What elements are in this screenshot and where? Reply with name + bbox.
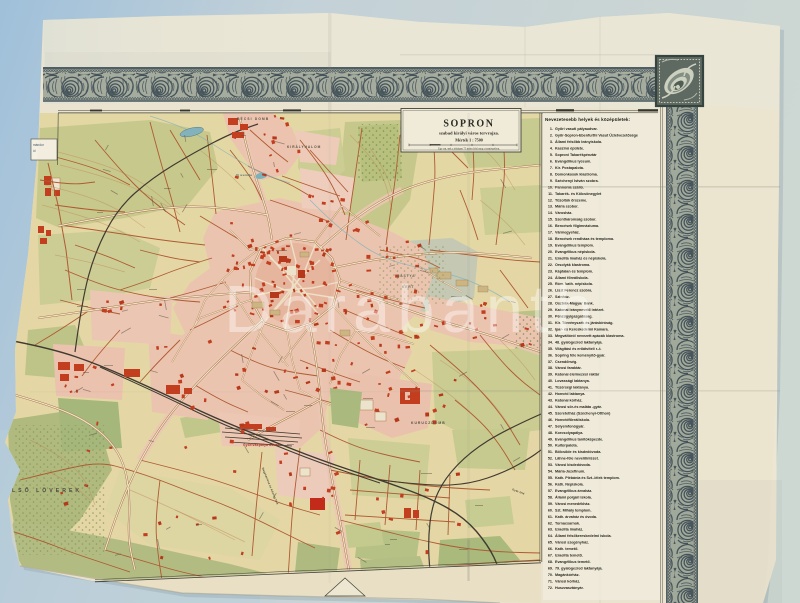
svg-text:Honvédfőreáliskola.: Honvédfőreáliskola. (555, 418, 590, 422)
svg-text:14.: 14. (548, 211, 553, 215)
svg-text:45.: 45. (548, 411, 553, 415)
svg-text:70.: 70. (548, 573, 553, 577)
svg-text:67.: 67. (548, 554, 553, 558)
svg-text:Kath. temető.: Kath. temető. (555, 547, 578, 551)
svg-text:Tüzérségi laktanya.: Tüzérségi laktanya. (555, 386, 589, 390)
svg-text:Katonai kórház.: Katonai kórház. (555, 399, 582, 403)
svg-text:Csendőrség.: Csendőrség. (555, 360, 577, 364)
svg-text:47.: 47. (548, 424, 553, 428)
svg-text:79. gyalogezred laktanyája.: 79. gyalogezred laktanyája. (555, 567, 603, 571)
svg-text:Lovassági laktanya.: Lovassági laktanya. (555, 379, 590, 383)
svg-text:Domonkosok klastroma.: Domonkosok klastroma. (555, 172, 598, 176)
svg-text:Kaszinó épülete.: Kaszinó épülete. (555, 147, 584, 151)
svg-text:62.: 62. (548, 521, 553, 525)
svg-text:Széchenyi István szobra.: Széchenyi István szobra. (555, 179, 599, 183)
svg-text:Izraelita temető.: Izraelita temető. (555, 554, 583, 558)
svg-text:2.: 2. (550, 134, 553, 138)
svg-text:56.: 56. (548, 483, 553, 487)
svg-text:Mária szobor.: Mária szobor. (555, 205, 579, 209)
svg-text:Sopring féle keményitő-gyár.: Sopring féle keményitő-gyár. (555, 353, 605, 357)
svg-text:Világitási és erőátviteli r.-t: Világitási és erőátviteli r.-t. (555, 347, 601, 351)
svg-text:68.: 68. (548, 560, 553, 564)
svg-text:Győr-Sopron-Ebenfurthi Vasut Ü: Győr-Sopron-Ebenfurthi Vasut Üzletvezető… (555, 133, 638, 138)
svg-text:Szt. Mihály templom.: Szt. Mihály templom. (555, 508, 591, 512)
svg-text:72.: 72. (548, 586, 553, 590)
svg-text:12.: 12. (548, 198, 553, 202)
svg-text:55.: 55. (548, 476, 553, 480)
svg-text:Evangélikus népiskola.: Evangélikus népiskola. (555, 250, 596, 254)
svg-text:57.: 57. (548, 489, 553, 493)
svg-text:43.: 43. (548, 399, 553, 403)
svg-text:Honvéd laktanya.: Honvéd laktanya. (555, 392, 585, 396)
svg-text:54.: 54. (548, 470, 553, 474)
svg-text:Evangélikus lyceum.: Evangélikus lyceum. (555, 160, 591, 164)
svg-text:9.: 9. (550, 179, 553, 183)
svg-text:5.: 5. (550, 153, 553, 157)
svg-text:11.: 11. (548, 192, 553, 196)
svg-text:Állami polgári iskola.: Állami polgári iskola. (555, 494, 592, 499)
svg-text:19.: 19. (548, 244, 553, 248)
svg-text:Takarék- és Kölcsönegylet: Takarék- és Kölcsönegylet (555, 192, 602, 196)
svg-text:Korcsolyapálya.: Korcsolyapálya. (555, 431, 583, 435)
svg-text:63.: 63. (548, 528, 553, 532)
svg-text:Darabanth: Darabanth (224, 272, 600, 347)
svg-text:37.: 37. (548, 360, 553, 364)
svg-text:Városi menedékház.: Városi menedékház. (555, 502, 590, 506)
svg-text:66.: 66. (548, 547, 553, 551)
svg-text:65.: 65. (548, 541, 553, 545)
svg-text:41.: 41. (548, 386, 553, 390)
svg-text:42.: 42. (548, 392, 553, 396)
svg-text:Városi kórház.: Városi kórház. (555, 579, 580, 583)
svg-text:46.: 46. (548, 418, 553, 422)
svg-text:Evangélikus tanitóképezde.: Evangélikus tanitóképezde. (555, 437, 603, 441)
svg-text:8.: 8. (550, 172, 553, 176)
svg-text:Bencések rendháza és temploma.: Bencések rendháza és temploma. (555, 237, 614, 241)
svg-text:17.: 17. (548, 231, 553, 235)
svg-text:40.: 40. (548, 379, 553, 383)
svg-text:Evangélikus árvaház.: Evangélikus árvaház. (555, 489, 592, 493)
svg-text:Tűzoltók őrszeme.: Tűzoltók őrszeme. (555, 198, 587, 202)
svg-text:Kir. Postapalota.: Kir. Postapalota. (555, 166, 584, 170)
svg-text:51.: 51. (548, 450, 553, 454)
svg-text:Vármegyeház.: Vármegyeház. (555, 231, 580, 235)
svg-text:3.: 3. (550, 140, 553, 144)
svg-text:50.: 50. (548, 444, 553, 448)
svg-text:Magánkórház.: Magánkórház. (555, 573, 580, 577)
svg-text:39.: 39. (548, 373, 553, 377)
svg-text:48.: 48. (548, 431, 553, 435)
svg-text:Bölcsőde és kisdedóvoda.: Bölcsőde és kisdedóvoda. (555, 450, 601, 454)
svg-text:44.: 44. (548, 405, 553, 409)
svg-text:13.: 13. (548, 205, 553, 209)
svg-text:Városi sör-és maláta -gyár.: Városi sör-és maláta -gyár. (555, 405, 602, 409)
svg-text:Evangélikus templom.: Evangélikus templom. (555, 244, 594, 248)
svg-text:6.: 6. (550, 160, 553, 164)
svg-text:Evangélikus temető.: Evangélikus temető. (555, 560, 591, 564)
svg-text:18.: 18. (548, 237, 553, 241)
svg-text:61.: 61. (548, 515, 553, 519)
svg-text:Lähne-féle nevelőintézet.: Lähne-féle nevelőintézet. (555, 457, 599, 461)
svg-text:Szeretetház (Széchenyi-Otthon): Szeretetház (Széchenyi-Otthon) (555, 411, 611, 415)
svg-text:ól: ól (33, 149, 36, 153)
svg-text:Városház.: Városház. (555, 211, 572, 215)
svg-text:Városi kisdedóvoda.: Városi kisdedóvoda. (555, 463, 591, 467)
svg-text:Bencések főgimnáziuma.: Bencések főgimnáziuma. (555, 224, 599, 228)
svg-text:35.: 35. (548, 347, 553, 351)
svg-text:Kultúrpalota.: Kultúrpalota. (555, 444, 578, 448)
svg-text:4.: 4. (550, 147, 553, 151)
svg-text:64.: 64. (548, 534, 553, 538)
svg-text:Mária-Jozefinum.: Mária-Jozefinum. (555, 470, 585, 474)
svg-text:Soproni Takarékpénztár: Soproni Takarékpénztár (555, 153, 597, 157)
svg-text:60.: 60. (548, 508, 553, 512)
svg-text:Kath. árvaház és óvoda.: Kath. árvaház és óvoda. (555, 515, 597, 519)
svg-text:Városi szegényház.: Városi szegényház. (555, 541, 589, 545)
svg-text:Szentháromság szobor.: Szentháromság szobor. (555, 218, 596, 222)
svg-text:Nevezetesebb helyek és középül: Nevezetesebb helyek és középületek: (545, 117, 631, 122)
svg-text:Állami felsőkereskedelmi iskol: Állami felsőkereskedelmi iskola. (555, 533, 612, 538)
svg-text:Állami felsőbb leányiskola.: Állami felsőbb leányiskola. (555, 139, 602, 144)
svg-text:16.: 16. (548, 224, 553, 228)
svg-text:20.: 20. (548, 250, 553, 254)
svg-text:36.: 36. (548, 353, 553, 357)
svg-text:1.: 1. (550, 127, 553, 131)
svg-text:38.: 38. (548, 366, 553, 370)
svg-text:53.: 53. (548, 463, 553, 467)
svg-text:21.: 21. (548, 256, 553, 260)
svg-text:58.: 58. (548, 495, 553, 499)
svg-text:49.: 49. (548, 437, 553, 441)
svg-text:Tornacsarnok.: Tornacsarnok. (555, 521, 580, 525)
svg-text:Győri vasuti pályaudvar.: Győri vasuti pályaudvar. (555, 127, 598, 131)
svg-text:52.: 52. (548, 457, 553, 461)
svg-text:69.: 69. (548, 567, 553, 571)
svg-text:Orsolyák klastroma.: Orsolyák klastroma. (555, 263, 590, 267)
svg-text:7.: 7. (550, 166, 553, 170)
svg-text:22.: 22. (548, 263, 553, 267)
svg-text:Izraelita imaház.: Izraelita imaház. (555, 528, 583, 532)
svg-text:Kath. Plébánia és Szt.-lélek t: Kath. Plébánia és Szt.-lélek templom. (555, 476, 620, 480)
svg-text:Huszvasztányár.: Huszvasztányár. (555, 586, 584, 590)
svg-text:Katonai élelmezési raktár: Katonai élelmezési raktár (555, 373, 600, 377)
svg-text:71.: 71. (548, 579, 553, 583)
svg-text:59.: 59. (548, 502, 553, 506)
svg-text:Kath. Népiskola.: Kath. Népiskola. (555, 483, 584, 487)
svg-text:Selyemfonógyár.: Selyemfonógyár. (555, 424, 585, 428)
svg-text:Városi faraktár.: Városi faraktár. (555, 366, 582, 370)
svg-text:Izraelita imaház és népiskola.: Izraelita imaház és népiskola. (555, 256, 606, 260)
svg-text:15.: 15. (548, 218, 553, 222)
